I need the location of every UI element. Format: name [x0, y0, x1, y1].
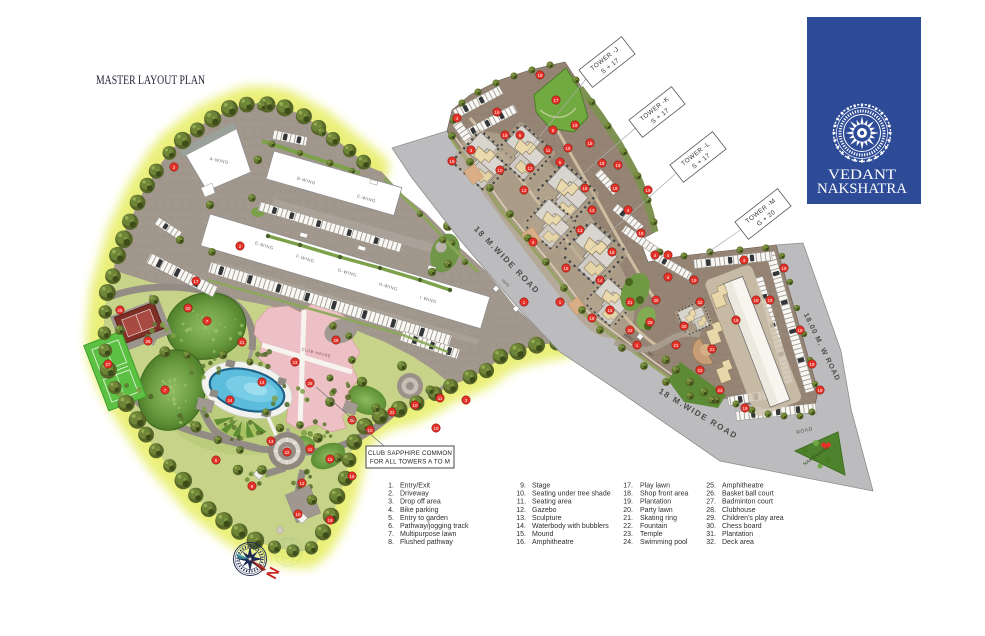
svg-text:19: 19 [810, 362, 815, 367]
svg-text:NAKSHATRA: NAKSHATRA [817, 181, 907, 197]
svg-text:19.: 19. [623, 499, 633, 506]
svg-text:Pathway/jogging track: Pathway/jogging track [400, 523, 469, 530]
svg-text:Deck area: Deck area [722, 539, 754, 546]
svg-text:Sculpture: Sculpture [532, 515, 562, 522]
svg-text:15: 15 [328, 457, 333, 462]
svg-text:FOR ALL TOWERS A TO M: FOR ALL TOWERS A TO M [370, 459, 450, 466]
svg-text:CLUB SAPPHIRE COMMON: CLUB SAPPHIRE COMMON [368, 450, 452, 457]
svg-text:Entry to garden: Entry to garden [400, 515, 448, 522]
svg-text:21.: 21. [623, 515, 633, 522]
svg-text:23.: 23. [623, 531, 633, 538]
svg-text:21: 21 [628, 300, 633, 305]
svg-text:Clubhouse: Clubhouse [722, 507, 756, 514]
svg-text:17: 17 [554, 98, 559, 103]
svg-text:12: 12 [522, 188, 527, 193]
svg-text:19: 19 [782, 266, 787, 271]
svg-text:18.: 18. [623, 491, 633, 498]
svg-text:20: 20 [186, 306, 191, 311]
svg-text:Flushed pathway: Flushed pathway [400, 539, 453, 546]
svg-text:18: 18 [590, 316, 595, 321]
svg-text:13: 13 [269, 439, 274, 444]
svg-text:Mound: Mound [532, 531, 554, 538]
svg-text:22: 22 [628, 328, 633, 333]
svg-text:1.: 1. [388, 483, 394, 490]
svg-text:Chess board: Chess board [722, 523, 762, 530]
svg-text:8.: 8. [388, 539, 394, 546]
svg-text:30: 30 [654, 298, 659, 303]
svg-text:29: 29 [648, 320, 653, 325]
svg-text:Seating area: Seating area [532, 499, 572, 506]
svg-text:14: 14 [260, 380, 265, 385]
svg-text:18: 18 [588, 141, 593, 146]
svg-text:13.: 13. [516, 515, 526, 522]
svg-text:19: 19 [613, 186, 618, 191]
svg-text:19: 19 [616, 163, 621, 168]
svg-text:22.: 22. [623, 523, 633, 530]
svg-text:Seating under tree shade: Seating under tree shade [532, 491, 611, 498]
svg-text:Driveway: Driveway [400, 491, 429, 498]
svg-text:11: 11 [308, 447, 313, 452]
svg-text:12: 12 [300, 481, 305, 486]
svg-text:Basket ball court: Basket ball court [722, 491, 774, 498]
svg-text:Amphitheatre: Amphitheatre [532, 539, 574, 546]
svg-text:14.: 14. [516, 523, 526, 530]
svg-text:28: 28 [308, 381, 313, 386]
svg-text:Children's play area: Children's play area [722, 515, 784, 522]
svg-text:27.: 27. [706, 499, 716, 506]
svg-text:15.: 15. [516, 531, 526, 538]
svg-text:30.: 30. [706, 523, 716, 530]
svg-text:10: 10 [296, 512, 301, 517]
svg-text:5.: 5. [388, 515, 394, 522]
svg-text:Multipurpose lawn: Multipurpose lawn [400, 531, 457, 538]
svg-text:Fountain: Fountain [640, 523, 667, 530]
svg-text:19: 19 [600, 161, 605, 166]
svg-text:Waterbody with bubblers: Waterbody with bubblers [532, 523, 609, 530]
svg-text:32: 32 [698, 300, 703, 305]
svg-text:12.: 12. [516, 507, 526, 514]
svg-text:19: 19 [566, 146, 571, 151]
svg-text:21: 21 [674, 343, 679, 348]
svg-text:13: 13 [578, 228, 583, 233]
svg-text:10: 10 [413, 403, 418, 408]
svg-text:Swimming pool: Swimming pool [640, 539, 688, 546]
svg-text:22: 22 [285, 450, 290, 455]
svg-text:6.: 6. [388, 523, 394, 530]
svg-text:MASTER LAYOUT PLAN: MASTER LAYOUT PLAN [96, 73, 205, 87]
svg-text:22: 22 [698, 368, 703, 373]
svg-text:7.: 7. [388, 531, 394, 538]
svg-text:Plantation: Plantation [722, 531, 753, 538]
svg-text:10: 10 [498, 168, 503, 173]
svg-text:29.: 29. [706, 515, 716, 522]
svg-text:19: 19 [768, 298, 773, 303]
svg-text:17: 17 [194, 279, 199, 284]
svg-text:18: 18 [583, 186, 588, 191]
svg-text:27: 27 [106, 362, 111, 367]
svg-text:32.: 32. [706, 539, 716, 546]
svg-text:10.: 10. [516, 491, 526, 498]
svg-text:23: 23 [293, 360, 298, 365]
svg-text:24: 24 [228, 398, 233, 403]
svg-text:19: 19 [495, 110, 500, 115]
svg-text:16.: 16. [516, 539, 526, 546]
svg-text:19: 19 [328, 518, 333, 523]
svg-text:Amphitheatre: Amphitheatre [722, 483, 764, 490]
svg-text:2.: 2. [388, 491, 394, 498]
svg-text:Temple: Temple [640, 531, 663, 538]
svg-text:19: 19 [692, 278, 697, 283]
svg-text:19: 19 [639, 231, 644, 236]
svg-text:21: 21 [240, 340, 245, 345]
svg-text:21: 21 [710, 347, 715, 352]
svg-text:25.: 25. [706, 483, 716, 490]
svg-text:19: 19 [434, 426, 439, 431]
svg-text:4.: 4. [388, 507, 394, 514]
svg-text:25: 25 [118, 308, 123, 313]
svg-text:18: 18 [610, 250, 615, 255]
svg-text:Badminton court: Badminton court [722, 499, 773, 506]
svg-text:13: 13 [590, 208, 595, 213]
svg-text:19: 19 [538, 73, 543, 78]
svg-text:16: 16 [608, 308, 613, 313]
svg-text:19: 19 [798, 328, 803, 333]
svg-text:31.: 31. [706, 531, 716, 538]
svg-text:20.: 20. [623, 507, 633, 514]
svg-text:Entry/Exit: Entry/Exit [400, 483, 430, 490]
svg-text:3.: 3. [388, 499, 394, 506]
svg-text:11: 11 [546, 148, 551, 153]
svg-text:9.: 9. [520, 483, 526, 490]
svg-text:28.: 28. [706, 507, 716, 514]
svg-text:23: 23 [718, 388, 723, 393]
svg-text:11: 11 [438, 396, 443, 401]
svg-text:Skating ring: Skating ring [640, 515, 677, 522]
svg-text:11.: 11. [517, 499, 526, 506]
svg-text:17.: 17. [623, 483, 633, 490]
svg-text:19: 19 [503, 133, 508, 138]
svg-text:Stage: Stage [532, 483, 550, 490]
svg-text:26.: 26. [706, 491, 716, 498]
svg-text:19: 19 [818, 388, 823, 393]
svg-text:19: 19 [743, 406, 748, 411]
svg-text:20: 20 [682, 324, 687, 329]
svg-text:12: 12 [528, 166, 533, 171]
svg-text:26: 26 [146, 339, 151, 344]
svg-text:19: 19 [734, 318, 739, 323]
svg-text:Play lawn: Play lawn [640, 483, 670, 490]
svg-text:24.: 24. [623, 539, 633, 546]
svg-text:Shop front area: Shop front area [640, 491, 688, 498]
svg-text:19: 19 [646, 188, 651, 193]
svg-text:Bike parking: Bike parking [400, 507, 439, 514]
svg-text:Party lawn: Party lawn [640, 507, 673, 514]
svg-text:29: 29 [334, 338, 339, 343]
svg-text:Drop off area: Drop off area [400, 499, 441, 506]
svg-text:31: 31 [390, 410, 395, 415]
svg-text:19: 19 [754, 298, 759, 303]
svg-text:Gazebo: Gazebo [532, 507, 557, 514]
svg-text:15: 15 [564, 266, 569, 271]
svg-text:Plantation: Plantation [640, 499, 671, 506]
svg-text:19: 19 [450, 159, 455, 164]
svg-text:16: 16 [350, 474, 355, 479]
svg-text:19: 19 [573, 123, 578, 128]
svg-text:14: 14 [598, 278, 603, 283]
